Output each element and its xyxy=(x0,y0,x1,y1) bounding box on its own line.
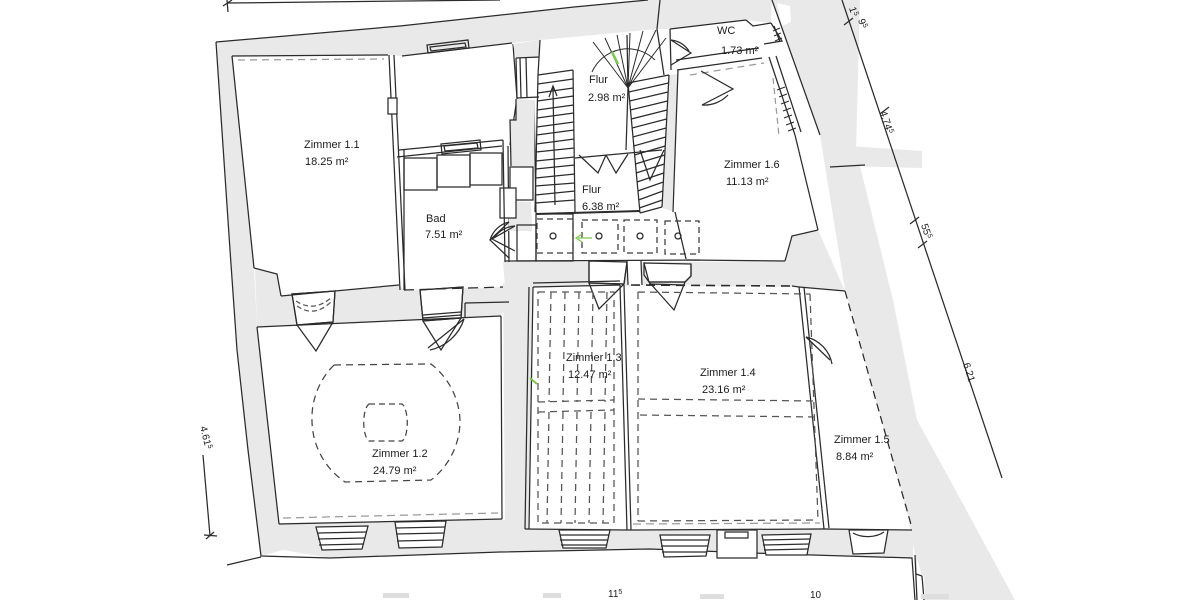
svg-text:1.73 m²: 1.73 m² xyxy=(721,45,759,57)
svg-text:Bad: Bad xyxy=(426,213,446,225)
svg-text:Zimmer 1.2: Zimmer 1.2 xyxy=(372,448,428,460)
svg-text:18.25 m²: 18.25 m² xyxy=(305,156,349,168)
svg-text:2.98 m²: 2.98 m² xyxy=(588,92,626,104)
svg-text:WC: WC xyxy=(717,25,735,37)
svg-text:23.16 m²: 23.16 m² xyxy=(702,384,746,396)
svg-text:Flur: Flur xyxy=(589,74,608,86)
svg-text:Zimmer 1.6: Zimmer 1.6 xyxy=(724,159,780,171)
svg-text:12.47 m²: 12.47 m² xyxy=(568,369,612,381)
svg-text:Zimmer 1.3: Zimmer 1.3 xyxy=(566,352,622,364)
svg-text:11.13 m²: 11.13 m² xyxy=(726,176,769,188)
svg-text:Zimmer 1.4: Zimmer 1.4 xyxy=(700,367,756,379)
svg-text:10: 10 xyxy=(810,590,822,600)
svg-text:Zimmer 1.5: Zimmer 1.5 xyxy=(834,434,890,446)
svg-text:7.51 m²: 7.51 m² xyxy=(425,229,463,241)
svg-text:Zimmer 1.1: Zimmer 1.1 xyxy=(304,139,360,151)
svg-text:6.38 m²: 6.38 m² xyxy=(582,201,620,213)
svg-text:Flur: Flur xyxy=(582,184,601,196)
svg-text:24.79 m²: 24.79 m² xyxy=(373,465,417,477)
svg-text:8.84 m²: 8.84 m² xyxy=(836,451,874,463)
